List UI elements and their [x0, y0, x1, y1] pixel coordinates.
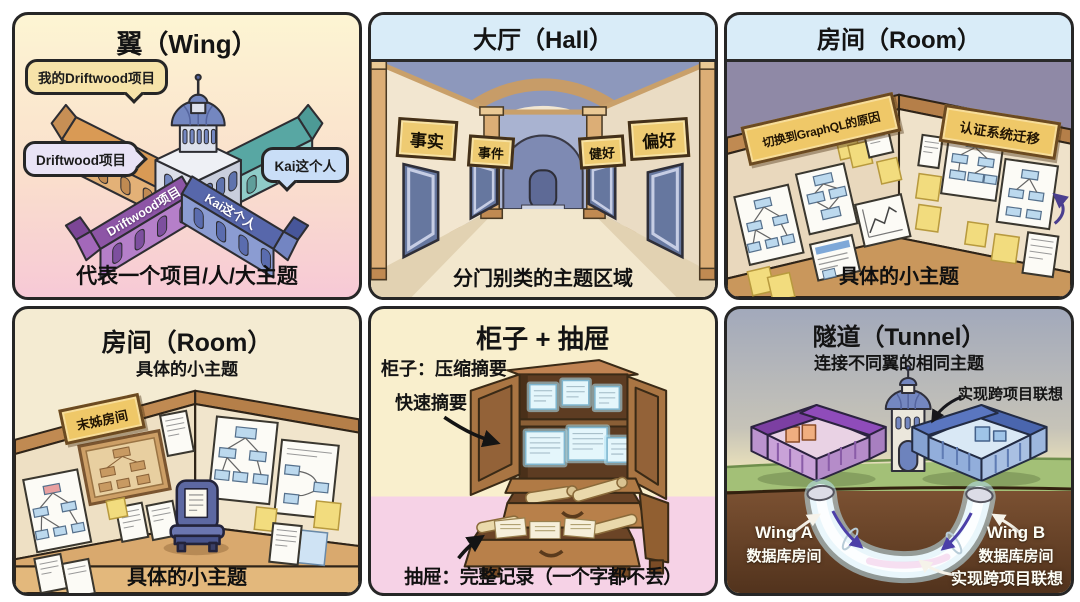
- wing-a-label: Wing A: [731, 523, 837, 543]
- wing-b-label: Wing B: [963, 523, 1069, 543]
- speech-bubble-project: Driftwood项目: [23, 141, 139, 177]
- panel-cabinet: 柜子 + 抽屉 柜子：压缩摘要 快速摘要 抽屉：完整记录（一个字都不丢）: [368, 306, 718, 596]
- panel-tunnel: 隧道（Tunnel） 连接不同翼的相同主题 实现跨项目联想 Wing A 数据库…: [724, 306, 1074, 596]
- wing-b-room-label: 数据库房间: [963, 545, 1069, 566]
- room-bottom-caption: 具体的小主题: [15, 561, 359, 590]
- hall-header-band: 大厅（Hall）: [371, 15, 715, 62]
- speech-bubble-my-project: 我的Driftwood项目: [25, 59, 168, 95]
- panel-room-top: 房间（Room） 切换到GraphQL的原因 认证系统迁移 具体的小主题: [724, 12, 1074, 300]
- cabinet-title: 柜子 + 抽屉: [371, 319, 715, 356]
- door-sign-events: 事件: [467, 134, 515, 169]
- speech-bubble-kai: Kai这个人: [261, 147, 349, 183]
- tunnel-subtitle: 连接不同翼的相同主题: [727, 349, 1071, 374]
- cabinet-caption: 抽屉：完整记录（一个字都不丢）: [371, 562, 715, 589]
- wing-caption: 代表一个项目/人/大主题: [15, 260, 359, 290]
- room-top-caption: 具体的小主题: [727, 260, 1071, 289]
- infographic-six-panels: 翼（Wing）: [0, 0, 1080, 602]
- panel-wing: 翼（Wing）: [12, 12, 362, 300]
- tunnel-title: 隧道（Tunnel）: [727, 317, 1071, 352]
- quick-summary-label: 快速摘要: [395, 389, 467, 415]
- panel-room-bottom: 房间（Room） 具体的小主题 末姊房间 具体的小主题: [12, 306, 362, 596]
- room-bottom-subtitle: 具体的小主题: [15, 355, 359, 380]
- door-sign-preferences: 偏好: [628, 117, 691, 161]
- room-top-header-band: 房间（Room）: [727, 15, 1071, 62]
- room-top-title: 房间（Room）: [817, 20, 981, 55]
- door-sign-health: 健好: [578, 134, 626, 169]
- hall-caption: 分门别类的主题区域: [371, 262, 715, 291]
- hall-title: 大厅（Hall）: [473, 20, 613, 55]
- room-bottom-title: 房间（Room）: [15, 323, 359, 359]
- tunnel-label-cross-project-bottom: 实现跨项目联想: [951, 565, 1063, 589]
- tunnel-label-cross-project-top: 实现跨项目联想: [958, 383, 1063, 404]
- door-sign-facts: 事实: [396, 117, 459, 161]
- panel-hall: 大厅（Hall） 事实 事件 健好 偏好 分门别类的主题区域: [368, 12, 718, 300]
- wing-a-room-label: 数据库房间: [731, 545, 837, 566]
- cabinet-summary-label: 柜子：压缩摘要: [381, 355, 507, 381]
